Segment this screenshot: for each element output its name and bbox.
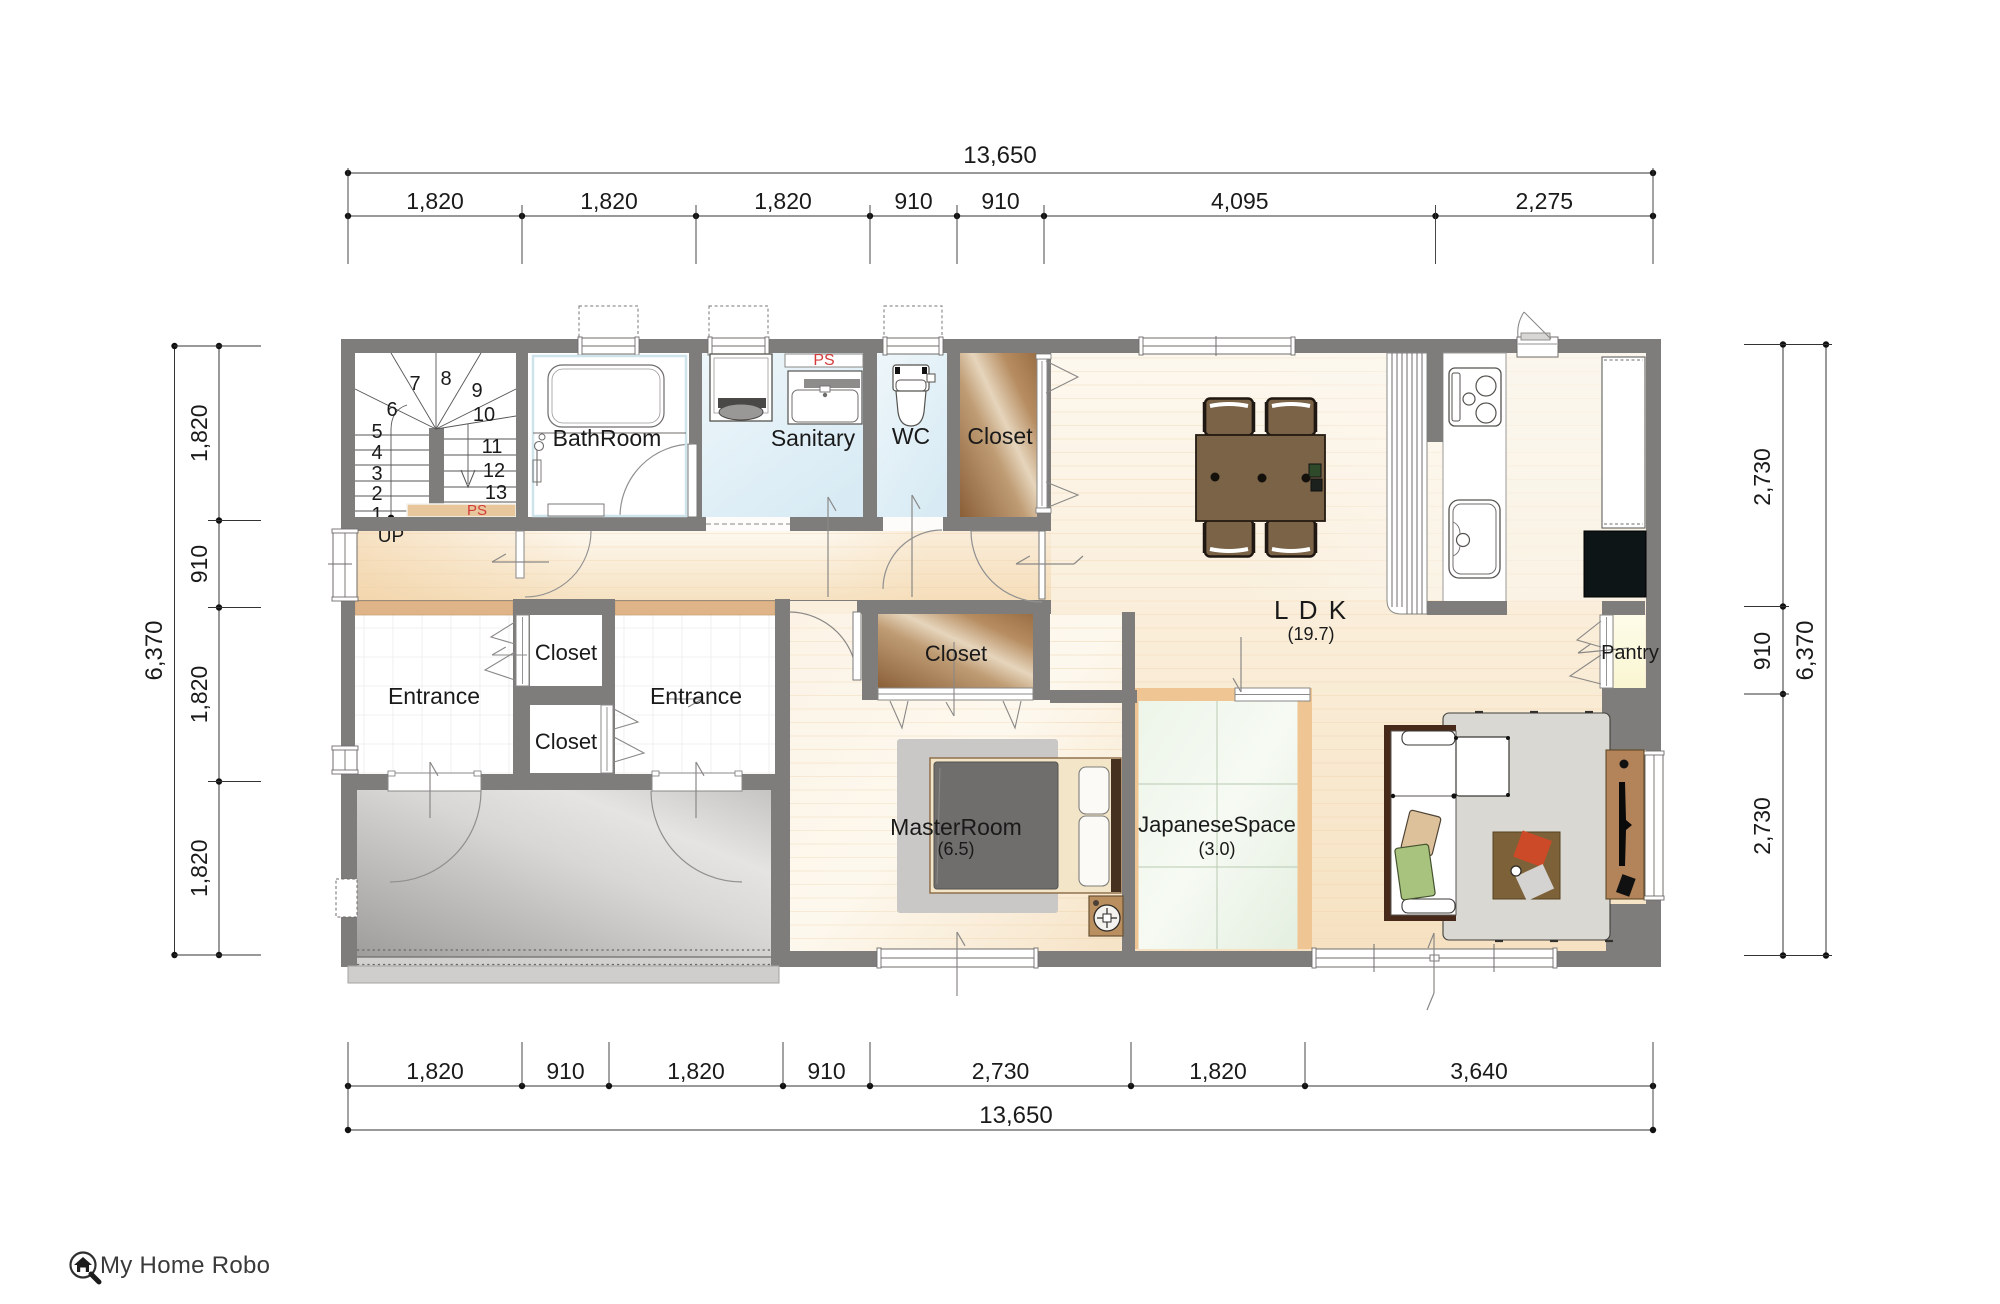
svg-text:12: 12: [483, 460, 505, 482]
svg-text:2,730: 2,730: [1749, 448, 1775, 506]
svg-text:Closet: Closet: [925, 641, 987, 666]
svg-text:910: 910: [807, 1058, 845, 1084]
svg-text:910: 910: [981, 188, 1019, 214]
svg-text:Closet: Closet: [535, 640, 597, 665]
svg-text:Entrance: Entrance: [388, 683, 480, 709]
svg-text:JapaneseSpace: JapaneseSpace: [1138, 812, 1296, 837]
svg-text:Pantry: Pantry: [1601, 642, 1659, 664]
svg-text:2,730: 2,730: [972, 1058, 1030, 1084]
svg-text:Entrance: Entrance: [650, 683, 742, 709]
svg-text:(3.0): (3.0): [1198, 839, 1235, 859]
svg-text:L D K: L D K: [1274, 595, 1348, 625]
svg-text:2: 2: [371, 483, 382, 505]
svg-text:7: 7: [409, 373, 420, 395]
svg-text:1,820: 1,820: [186, 404, 212, 462]
svg-text:My Home Robo: My Home Robo: [100, 1252, 270, 1279]
svg-text:1,820: 1,820: [186, 839, 212, 897]
svg-text:Closet: Closet: [535, 729, 597, 754]
svg-text:PS: PS: [467, 502, 487, 519]
svg-text:13,650: 13,650: [963, 142, 1036, 169]
svg-text:(6.5): (6.5): [937, 839, 974, 859]
svg-text:8: 8: [440, 368, 451, 390]
svg-text:PS: PS: [813, 352, 834, 369]
svg-text:1,820: 1,820: [406, 188, 464, 214]
svg-text:910: 910: [186, 545, 212, 583]
svg-text:2,275: 2,275: [1515, 188, 1573, 214]
svg-text:1,820: 1,820: [1189, 1058, 1247, 1084]
svg-text:Closet: Closet: [967, 423, 1033, 449]
svg-text:910: 910: [546, 1058, 584, 1084]
svg-text:3,640: 3,640: [1450, 1058, 1508, 1084]
svg-text:1,820: 1,820: [667, 1058, 725, 1084]
svg-text:6,370: 6,370: [141, 620, 168, 680]
svg-text:3: 3: [371, 463, 382, 485]
svg-text:BathRoom: BathRoom: [553, 425, 662, 451]
svg-text:13: 13: [485, 482, 507, 504]
svg-text:10: 10: [473, 404, 495, 426]
svg-text:1,820: 1,820: [580, 188, 638, 214]
svg-text:4,095: 4,095: [1211, 188, 1269, 214]
svg-text:WC: WC: [892, 423, 930, 449]
svg-text:6,370: 6,370: [1792, 620, 1819, 680]
svg-text:910: 910: [894, 188, 932, 214]
svg-text:13,650: 13,650: [979, 1102, 1052, 1129]
svg-text:MasterRoom: MasterRoom: [890, 814, 1022, 840]
svg-text:5: 5: [371, 421, 382, 443]
svg-text:11: 11: [482, 436, 503, 458]
svg-text:(19.7): (19.7): [1287, 624, 1334, 644]
svg-text:4: 4: [371, 442, 382, 464]
svg-text:9: 9: [471, 380, 482, 402]
svg-text:6: 6: [386, 399, 397, 421]
svg-text:910: 910: [1749, 632, 1775, 670]
svg-text:1,820: 1,820: [406, 1058, 464, 1084]
svg-text:Sanitary: Sanitary: [771, 425, 856, 451]
svg-text:1,820: 1,820: [754, 188, 812, 214]
svg-text:1,820: 1,820: [186, 666, 212, 724]
svg-text:2,730: 2,730: [1749, 797, 1775, 855]
